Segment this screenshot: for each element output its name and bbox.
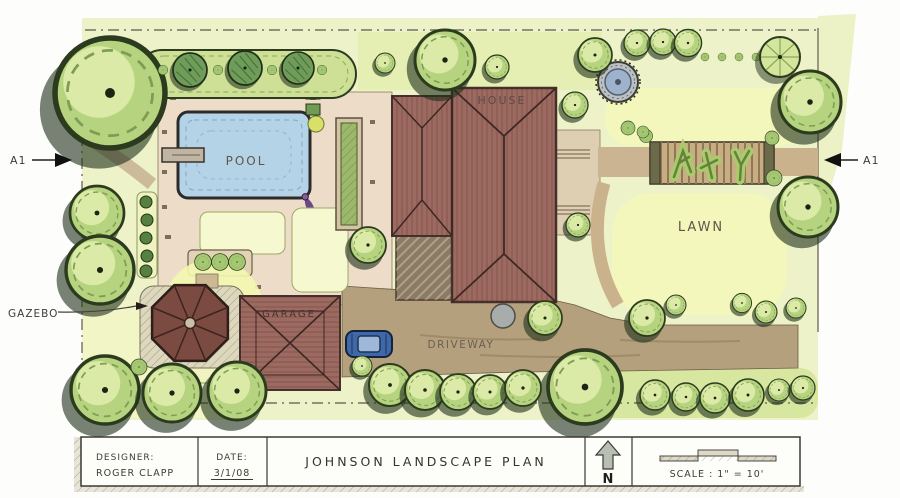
house bbox=[392, 88, 556, 328]
shrub bbox=[766, 170, 782, 186]
shrub bbox=[158, 65, 168, 75]
shrub bbox=[765, 131, 779, 145]
driveway-label: DRIVEWAY bbox=[428, 339, 495, 351]
title-block: DESIGNER: ROGER CLAPP DATE: 3/1/08 JOHNS… bbox=[74, 437, 804, 492]
shrub bbox=[735, 53, 743, 61]
lawn-label: LAWN bbox=[678, 220, 724, 235]
shrub bbox=[195, 254, 212, 271]
shrub bbox=[267, 65, 277, 75]
bed-lawn-patch bbox=[200, 212, 285, 254]
espalier-trellis bbox=[650, 142, 774, 184]
north-label: N bbox=[603, 472, 614, 487]
tree bbox=[62, 356, 139, 437]
shrub bbox=[621, 121, 635, 135]
entry-landing bbox=[491, 304, 515, 328]
car bbox=[346, 331, 392, 357]
shrub bbox=[317, 65, 327, 75]
scale-label: SCALE : 1" = 10' bbox=[670, 469, 765, 480]
raised-planter bbox=[336, 118, 362, 230]
house-label: HOUSE bbox=[478, 94, 527, 107]
date-label: DATE: bbox=[216, 453, 247, 463]
gazebo-label: GAZEBO bbox=[8, 308, 58, 320]
section-label-left: A1 bbox=[10, 154, 27, 167]
section-label-right: A1 bbox=[863, 154, 880, 167]
shrub bbox=[718, 53, 726, 61]
shrub bbox=[213, 65, 223, 75]
house-deck-boards bbox=[396, 236, 452, 300]
designer-name: ROGER CLAPP bbox=[96, 468, 174, 479]
landscape-plan-sheet: POOL HOUSE LAWN GARAGE DRIVEWAY GAZEBO A… bbox=[0, 0, 900, 498]
walk-to-trellis bbox=[598, 147, 654, 177]
plan-title: JOHNSON LANDSCAPE PLAN bbox=[304, 454, 546, 469]
pool-label: POOL bbox=[226, 154, 267, 168]
designer-label: DESIGNER: bbox=[96, 453, 154, 463]
shrub bbox=[212, 254, 229, 271]
lawn-area bbox=[612, 193, 787, 315]
gazebo-roof bbox=[152, 285, 228, 361]
garage-label: GARAGE bbox=[262, 309, 316, 320]
date-value: 3/1/08 bbox=[214, 468, 251, 479]
shrub bbox=[229, 254, 246, 271]
shrub bbox=[637, 126, 649, 138]
shrub bbox=[131, 359, 147, 375]
shrub bbox=[701, 53, 709, 61]
gazebo-finial bbox=[185, 318, 196, 329]
plan-canvas: POOL HOUSE LAWN GARAGE DRIVEWAY GAZEBO A… bbox=[0, 0, 900, 498]
